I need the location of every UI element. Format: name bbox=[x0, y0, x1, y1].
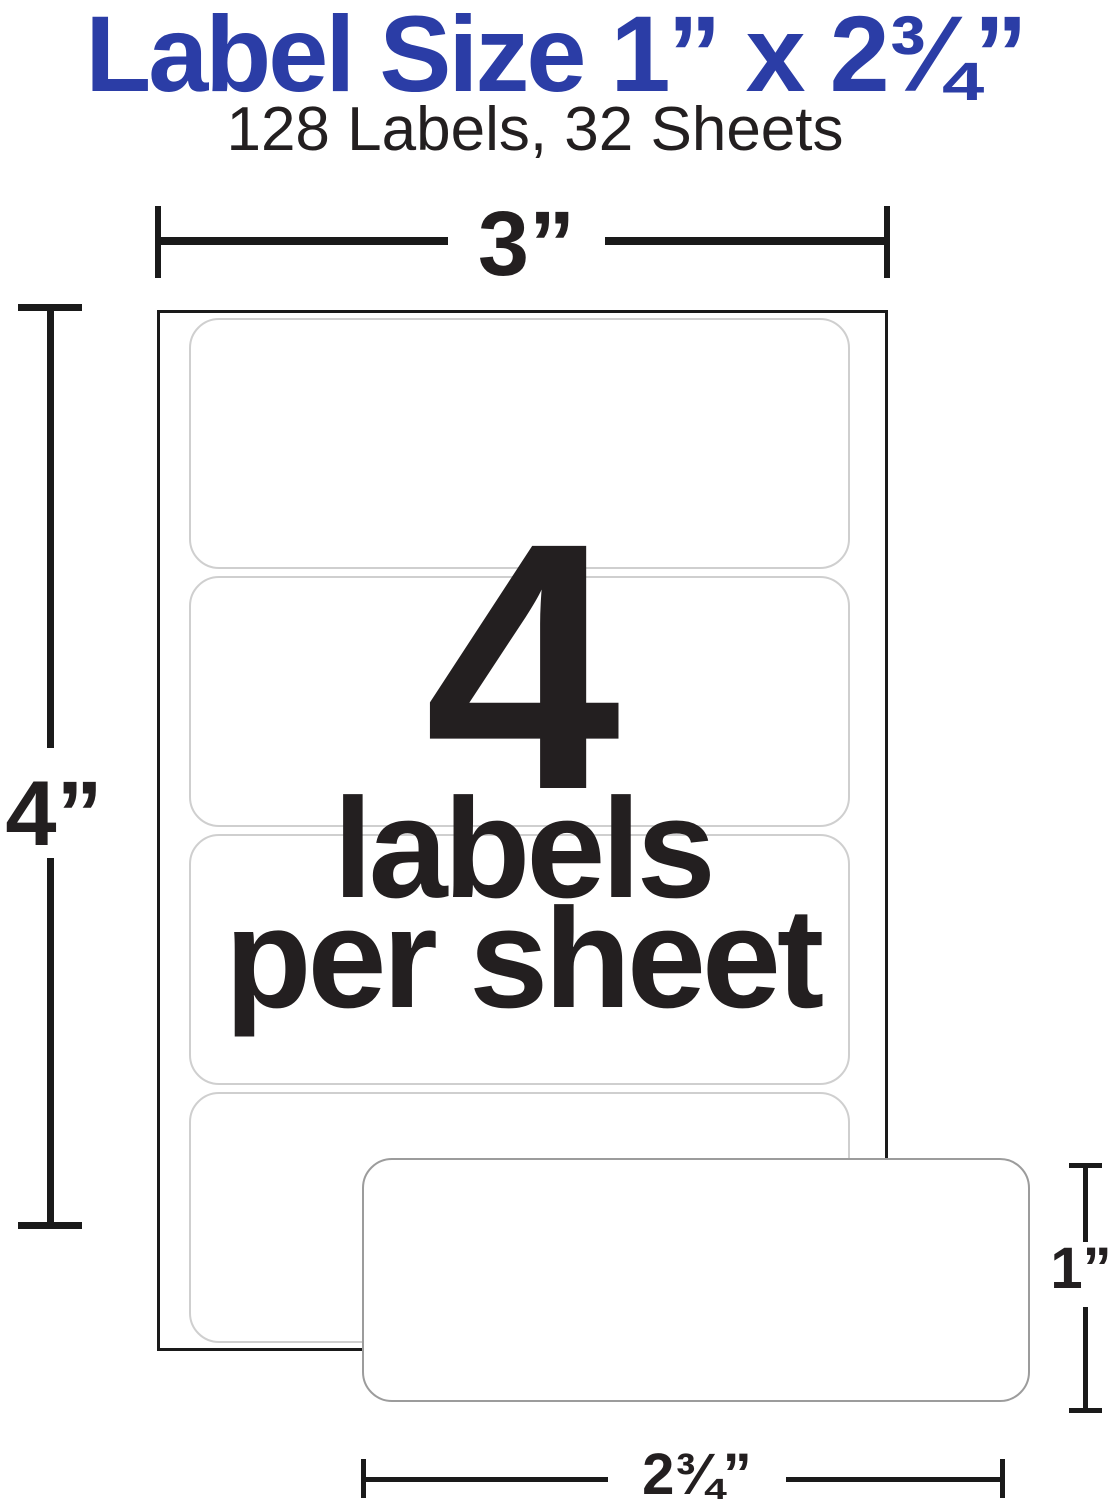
dimension-line bbox=[161, 237, 448, 245]
dimension-line bbox=[1083, 1307, 1088, 1408]
dimension-cap bbox=[1069, 1408, 1102, 1413]
dimension-line bbox=[1083, 1168, 1088, 1242]
labels-caption-line2: per sheet bbox=[157, 888, 888, 1030]
dimension-line bbox=[47, 311, 54, 748]
dimension-cap bbox=[18, 1222, 82, 1229]
page-subtitle: 128 Labels, 32 Sheets bbox=[0, 99, 1070, 161]
sheet-width-value: 3” bbox=[448, 198, 605, 290]
dimension-cap bbox=[884, 206, 890, 278]
dimension-line bbox=[47, 858, 54, 1222]
label-width-value: 2¾” bbox=[608, 1446, 786, 1500]
dimension-cap bbox=[1000, 1459, 1005, 1498]
sheet-height-value: 4” bbox=[0, 768, 113, 860]
dimension-line bbox=[786, 1477, 1000, 1482]
dimension-cap bbox=[18, 304, 82, 311]
page-title: Label Size 1” x 2¾” bbox=[0, 0, 1110, 108]
product-diagram: Label Size 1” x 2¾” 128 Labels, 32 Sheet… bbox=[0, 0, 1110, 1500]
label-height-value: 1” bbox=[1035, 1240, 1110, 1298]
dimension-line bbox=[366, 1477, 608, 1482]
dimension-line bbox=[605, 237, 884, 245]
single-label bbox=[362, 1158, 1030, 1402]
